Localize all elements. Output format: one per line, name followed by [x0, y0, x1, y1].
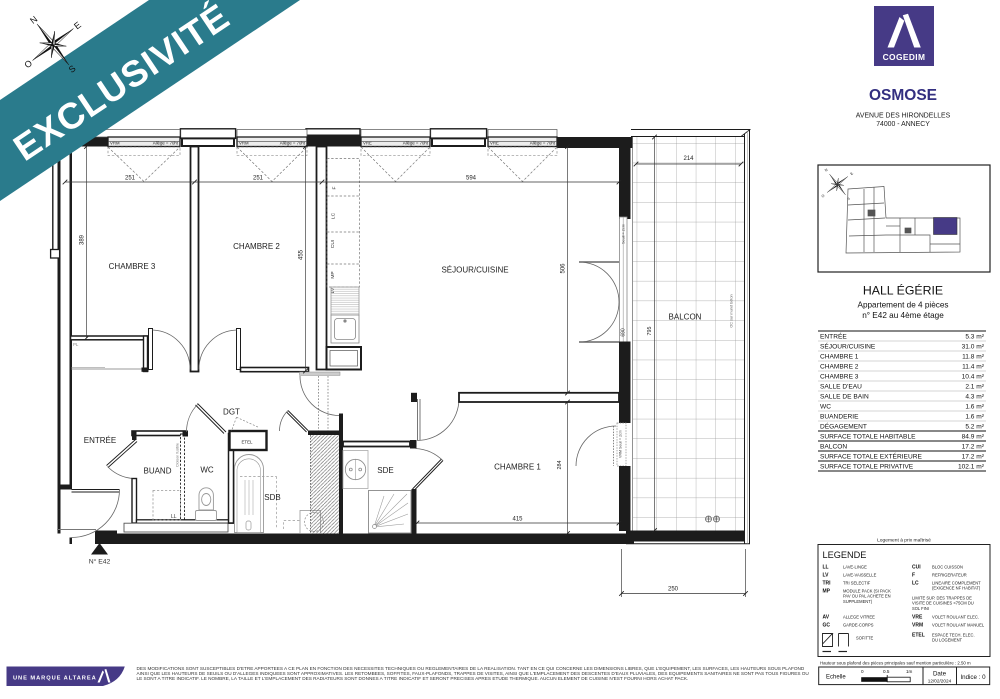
- svg-text:1.6 m²: 1.6 m²: [965, 413, 984, 420]
- svg-text:LV: LV: [823, 573, 830, 579]
- svg-text:WC: WC: [820, 403, 831, 410]
- svg-text:N° E42: N° E42: [89, 558, 111, 566]
- svg-text:PL: PL: [73, 342, 79, 347]
- svg-text:17.2 m²: 17.2 m²: [962, 443, 985, 450]
- svg-text:GC: GC: [823, 623, 831, 629]
- svg-text:TRI SELECTIF: TRI SELECTIF: [843, 581, 871, 586]
- svg-text:CHAMBRE 3: CHAMBRE 3: [109, 262, 156, 271]
- svg-text:SURFACE TOTALE EXTÉRIEURE: SURFACE TOTALE EXTÉRIEURE: [820, 451, 922, 460]
- svg-text:0.5: 0.5: [883, 669, 890, 674]
- svg-text:HALL ÉGÉRIE: HALL ÉGÉRIE: [863, 283, 943, 298]
- svg-text:VRM: VRM: [110, 140, 120, 145]
- svg-text:UNE MARQUE ALTAREA: UNE MARQUE ALTAREA: [13, 675, 97, 681]
- svg-text:Logement à prix maîtrisé: Logement à prix maîtrisé: [877, 538, 931, 544]
- svg-text:ENTRÉE: ENTRÉE: [820, 331, 847, 340]
- svg-text:Allège = 70ht: Allège = 70ht: [280, 140, 306, 145]
- svg-text:AV: AV: [823, 615, 830, 621]
- svg-text:TRI: TRI: [823, 581, 832, 587]
- svg-text:415: 415: [512, 517, 523, 523]
- svg-text:ETEL: ETEL: [912, 633, 925, 639]
- svg-text:ENTRÉE: ENTRÉE: [84, 436, 116, 445]
- svg-text:OSMOSE: OSMOSE: [869, 87, 937, 104]
- svg-text:VRE: VRE: [490, 140, 499, 145]
- svg-text:Indice : 0: Indice : 0: [960, 674, 986, 681]
- svg-text:11.4 m²: 11.4 m²: [962, 363, 985, 370]
- svg-text:DÉGAGEMENT: DÉGAGEMENT: [820, 421, 867, 430]
- svg-text:SÉJOUR/CUISINE: SÉJOUR/CUISINE: [441, 266, 508, 275]
- svg-text:690: 690: [621, 328, 627, 337]
- svg-text:Seuil = 2cm: Seuil = 2cm: [622, 224, 626, 244]
- svg-text:795: 795: [647, 327, 653, 336]
- svg-text:WC: WC: [200, 466, 214, 475]
- svg-text:LE SONT A TITRE INDICATIF. LE: LE SONT A TITRE INDICATIF. LE NOMBRE, LA…: [137, 676, 689, 681]
- svg-text:CHAMBRE 2: CHAMBRE 2: [820, 363, 859, 370]
- svg-text:MP: MP: [330, 271, 336, 278]
- svg-text:BALCON: BALCON: [669, 313, 702, 322]
- svg-text:Cloison fusible: Cloison fusible: [175, 443, 179, 467]
- svg-text:SURFACE TOTALE PRIVATIVE: SURFACE TOTALE PRIVATIVE: [820, 463, 914, 470]
- svg-text:VRE: VRE: [912, 615, 923, 621]
- svg-text:CHAMBRE 1: CHAMBRE 1: [494, 463, 541, 472]
- svg-text:389: 389: [80, 234, 86, 245]
- svg-text:Allège = 70ht: Allège = 70ht: [153, 140, 179, 145]
- svg-text:251: 251: [253, 176, 264, 182]
- svg-text:Hauteur sous plafond des pièce: Hauteur sous plafond des pièces principa…: [820, 661, 971, 666]
- svg-text:COGEDIM: COGEDIM: [883, 52, 926, 62]
- svg-text:11.8 m²: 11.8 m²: [962, 353, 985, 360]
- svg-text:102.1 m²: 102.1 m²: [958, 463, 985, 470]
- svg-text:Allège = 70ht: Allège = 70ht: [403, 140, 429, 145]
- svg-text:455: 455: [299, 249, 305, 260]
- svg-text:GARDE-CORPS: GARDE-CORPS: [843, 623, 874, 628]
- svg-text:VOLET ROULANT MANUEL: VOLET ROULANT MANUEL: [932, 623, 985, 628]
- svg-text:n° E42 au 4ème étage: n° E42 au 4ème étage: [862, 311, 944, 320]
- svg-text:VRM: VRM: [239, 140, 249, 145]
- svg-text:AVENUE DES HIRONDELLES: AVENUE DES HIRONDELLES: [856, 113, 951, 120]
- svg-text:BALCON: BALCON: [820, 443, 847, 450]
- svg-text:BUAND: BUAND: [143, 467, 171, 476]
- svg-text:LAVE-VAISSELLE: LAVE-VAISSELLE: [843, 573, 877, 578]
- svg-text:251: 251: [125, 176, 136, 182]
- svg-text:17.2 m²: 17.2 m²: [962, 453, 985, 460]
- svg-text:CHAMBRE 2: CHAMBRE 2: [233, 242, 280, 251]
- svg-text:F: F: [332, 187, 338, 190]
- svg-text:Appartement de 4 pièces: Appartement de 4 pièces: [857, 301, 948, 310]
- svg-text:F: F: [912, 573, 915, 579]
- svg-text:BLOC CUISSON: BLOC CUISSON: [932, 565, 963, 570]
- svg-text:CHAMBRE 3: CHAMBRE 3: [820, 373, 859, 380]
- svg-text:SDE: SDE: [377, 466, 393, 475]
- svg-text:4.3 m²: 4.3 m²: [965, 393, 984, 400]
- svg-text:VRM Seuil = 2cm: VRM Seuil = 2cm: [619, 430, 623, 458]
- svg-text:BUANDERIE: BUANDERIE: [820, 413, 859, 420]
- svg-text:74000 - ANNECY: 74000 - ANNECY: [876, 121, 930, 128]
- svg-text:CUI: CUI: [912, 565, 921, 571]
- svg-text:SUPPLEMENT): SUPPLEMENT): [843, 599, 873, 604]
- svg-text:SOFITTE: SOFITTE: [856, 636, 874, 641]
- svg-text:CHAMBRE 1: CHAMBRE 1: [820, 353, 859, 360]
- svg-text:250: 250: [668, 587, 679, 593]
- svg-text:LC: LC: [912, 581, 919, 587]
- svg-text:SOL FINI: SOL FINI: [912, 606, 929, 611]
- svg-text:5.2 m²: 5.2 m²: [965, 423, 984, 430]
- svg-text:DGT: DGT: [223, 408, 240, 417]
- svg-text:SALLE D'EAU: SALLE D'EAU: [820, 383, 862, 390]
- svg-text:284: 284: [557, 461, 563, 470]
- svg-text:214: 214: [683, 156, 694, 162]
- svg-text:2.1 m²: 2.1 m²: [965, 383, 984, 390]
- svg-text:84.9 m²: 84.9 m²: [962, 433, 985, 440]
- svg-text:LAVE-LINGE: LAVE-LINGE: [843, 565, 867, 570]
- svg-text:ALLEGE VITREE: ALLEGE VITREE: [843, 615, 875, 620]
- svg-text:LEGENDE: LEGENDE: [823, 550, 867, 560]
- svg-text:OC sur muret béton: OC sur muret béton: [730, 294, 734, 327]
- svg-text:10.4 m²: 10.4 m²: [962, 373, 985, 380]
- svg-text:LC: LC: [331, 212, 337, 219]
- svg-text:VOLET ROULANT ELEC.: VOLET ROULANT ELEC.: [932, 615, 979, 620]
- svg-text:MP: MP: [823, 589, 831, 595]
- svg-text:506: 506: [561, 263, 567, 274]
- svg-text:LL: LL: [171, 514, 177, 520]
- svg-text:(EXIGENCE NF HABITAT): (EXIGENCE NF HABITAT): [932, 586, 981, 591]
- svg-text:VRM: VRM: [912, 623, 923, 629]
- svg-text:1m: 1m: [906, 669, 913, 674]
- svg-text:SURFACE TOTALE HABITABLE: SURFACE TOTALE HABITABLE: [820, 433, 916, 440]
- svg-text:REFRIGERATEUR: REFRIGERATEUR: [932, 573, 967, 578]
- svg-text:LL: LL: [823, 565, 829, 571]
- svg-text:ETEL: ETEL: [242, 439, 254, 444]
- svg-text:VRE: VRE: [363, 140, 372, 145]
- svg-text:SÉJOUR/CUISINE: SÉJOUR/CUISINE: [820, 341, 876, 350]
- svg-text:Echelle: Echelle: [826, 675, 846, 681]
- svg-text:CUI: CUI: [330, 240, 336, 248]
- svg-text:Date: Date: [933, 671, 947, 678]
- svg-text:SALLE DE BAIN: SALLE DE BAIN: [820, 393, 869, 400]
- svg-text:12/02/2024: 12/02/2024: [928, 679, 952, 684]
- svg-text:SDB: SDB: [264, 493, 280, 502]
- svg-text:594: 594: [466, 176, 477, 182]
- svg-text:31.0 m²: 31.0 m²: [962, 343, 985, 350]
- svg-text:1.6 m²: 1.6 m²: [965, 403, 984, 410]
- svg-text:0: 0: [861, 669, 864, 674]
- svg-text:DU LOGEMENT: DU LOGEMENT: [932, 638, 963, 643]
- svg-text:Allège = 70ht: Allège = 70ht: [530, 140, 556, 145]
- svg-text:5.3 m²: 5.3 m²: [965, 333, 984, 340]
